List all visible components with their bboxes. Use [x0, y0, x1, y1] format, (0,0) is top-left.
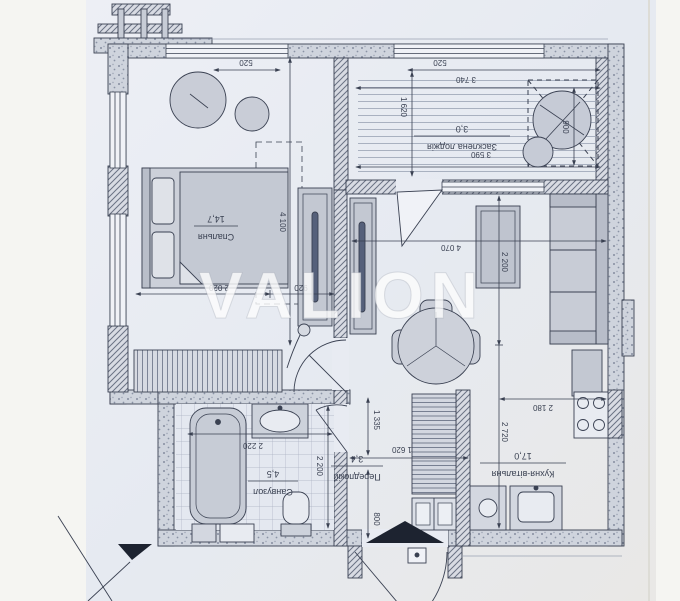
washbasin — [252, 404, 308, 438]
pillow — [152, 232, 174, 278]
room-area-hallway: 3,4 — [351, 454, 364, 464]
bathroom — [176, 404, 334, 542]
room-name-bedroom: Спальня — [198, 232, 234, 242]
room-area-bedroom: 14,7 — [207, 214, 225, 224]
dim-loggia-window: 520 — [433, 58, 447, 67]
bedroom-top-window — [166, 44, 288, 58]
hallway — [412, 394, 456, 530]
room-name-bathroom: Санвузол — [253, 487, 293, 497]
dim-loggia-plant-zone: 900 — [561, 120, 570, 134]
loggia-inner-window — [442, 182, 544, 192]
dim-bathroom-depth: 2 200 — [315, 456, 324, 477]
dim-loggia-width-top: 3 740 — [455, 75, 476, 84]
bathroom-cabinet — [192, 524, 254, 542]
sofa-armrest — [550, 331, 596, 344]
loggia-top-window — [394, 44, 544, 58]
washing-machine — [470, 486, 506, 530]
small-plant-icon — [523, 137, 553, 167]
dim-kitchen-width: 2 180 — [532, 403, 553, 412]
room-area-kitchen: 17,0 — [514, 451, 532, 461]
dim-hallway-depth-lower: 800 — [372, 512, 381, 526]
sofa-armrest — [550, 194, 596, 207]
bathtub — [190, 408, 246, 524]
dim-bedroom-window: 520 — [239, 58, 253, 67]
hall-shelves — [412, 498, 456, 530]
side-table — [572, 350, 602, 396]
bedroom-left-window-1 — [110, 92, 126, 168]
headboard — [142, 168, 150, 288]
room-name-hallway: Передпокій — [333, 472, 380, 482]
dim-loggia-depth: 1 620 — [399, 97, 408, 118]
dim-bathroom-width: 2 220 — [242, 441, 263, 450]
floor-plan-drawing: 520 520 3 740 1 620 3 590 900 4 100 2 02… — [0, 0, 680, 601]
small-plant-icon — [235, 97, 269, 131]
room-area-loggia: 3,0 — [456, 124, 469, 134]
floor-plan-photo: 520 520 3 740 1 620 3 590 900 4 100 2 02… — [0, 0, 680, 601]
bedroom-left-window-2 — [110, 214, 126, 326]
dresser — [134, 350, 282, 392]
dim-living-depth: 2 200 — [500, 252, 509, 273]
sofa-back — [596, 194, 608, 344]
dim-hallway-depth-upper: 1 335 — [372, 410, 381, 431]
room-area-bathroom: 4,5 — [267, 469, 280, 479]
kitchen-sink — [510, 486, 562, 530]
room-name-loggia: Засклена лоджія — [427, 142, 497, 152]
pillow — [152, 178, 174, 224]
dim-hallway-width: 1 620 — [391, 445, 412, 454]
dim-kitchen-depth: 2 720 — [500, 422, 509, 443]
dim-living-width: 4 070 — [440, 243, 461, 252]
sofa — [550, 194, 608, 344]
drain — [216, 420, 221, 425]
toilet — [281, 492, 311, 536]
valion-watermark: VALION — [199, 258, 485, 332]
dim-bedroom-length: 4 100 — [278, 212, 287, 233]
hall-wardrobe — [412, 394, 456, 494]
room-name-kitchen: Кухня-вітальня — [492, 469, 555, 479]
